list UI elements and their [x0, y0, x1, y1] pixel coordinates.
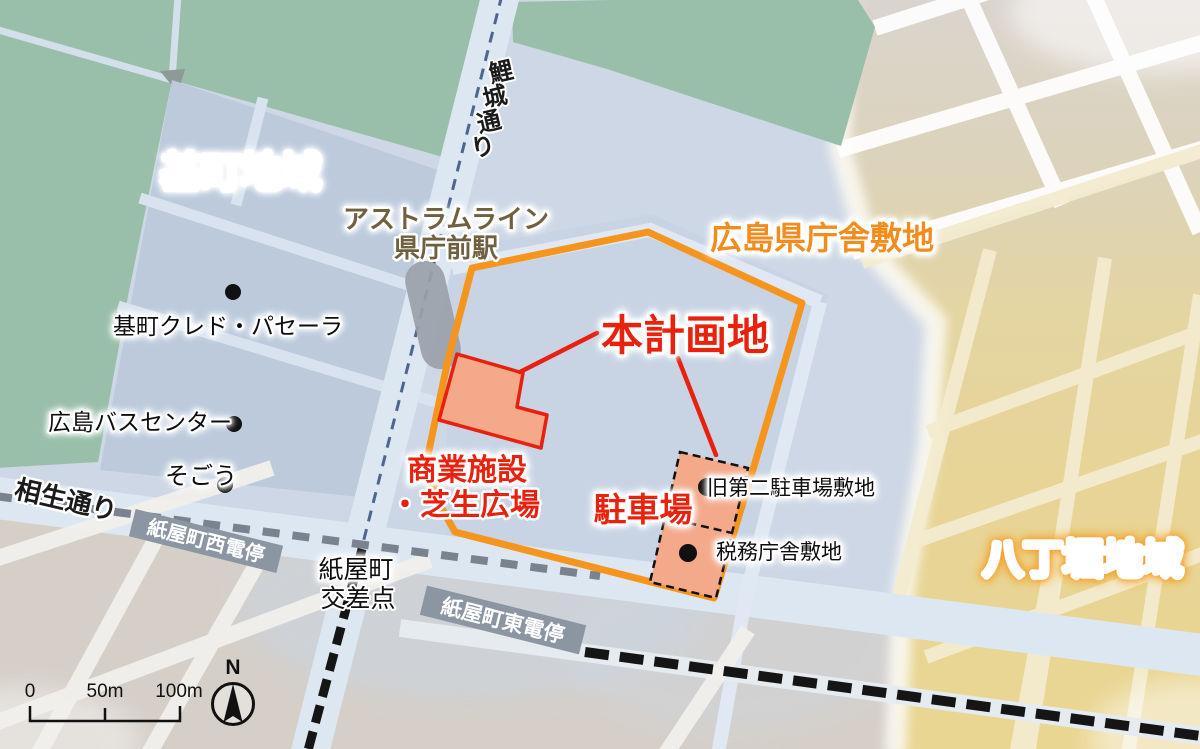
scale-bar-mid: 50m — [87, 681, 124, 702]
astram-station-label-line2: 県庁前駅 — [394, 233, 498, 263]
plan-label-old-parking: 旧第二駐車場敷地 — [707, 477, 875, 500]
poi-dot-credo — [225, 284, 241, 300]
map-canvas: 紙屋町西電停 紙屋町東電停 基町地域 広島県庁舎敷地 八丁堀地域 鯉 城 通 り… — [0, 0, 1200, 749]
poi-label-bus-center: 広島バスセンター — [48, 409, 232, 435]
poi-dot-tax-office — [679, 544, 697, 562]
poi-label-sogo: そごう — [165, 463, 237, 490]
plan-label-tax-office: 税務庁舎敷地 — [716, 541, 842, 564]
map: 紙屋町西電停 紙屋町東電停 基町地域 広島県庁舎敷地 八丁堀地域 鯉 城 通 り… — [0, 0, 1200, 749]
astram-station-label-line1: アストラムライン — [343, 204, 549, 234]
intersection-label-line1: 紙屋町 — [318, 556, 393, 584]
plan-label-commercial-line2: ・芝生広場 — [390, 489, 540, 522]
poi-label-credo: 基町クレド・パセーラ — [113, 313, 343, 339]
plan-label-parking: 駐車場 — [594, 491, 693, 528]
intersection-label-line2: 交差点 — [320, 585, 395, 613]
plan-label-site: 本計画地 — [601, 312, 769, 359]
scale-bar-start: 0 — [25, 681, 36, 702]
scale-bar-end: 100m — [155, 681, 203, 702]
region-label-hatchobori: 八丁堀地域 — [983, 538, 1183, 582]
plan-label-commercial-line1: 商業施設 — [407, 453, 527, 487]
compass-north-label: N — [225, 656, 240, 679]
region-label-motomachi: 基町地域 — [161, 151, 321, 195]
region-label-prefectural-office: 広島県庁舎敷地 — [710, 220, 934, 256]
